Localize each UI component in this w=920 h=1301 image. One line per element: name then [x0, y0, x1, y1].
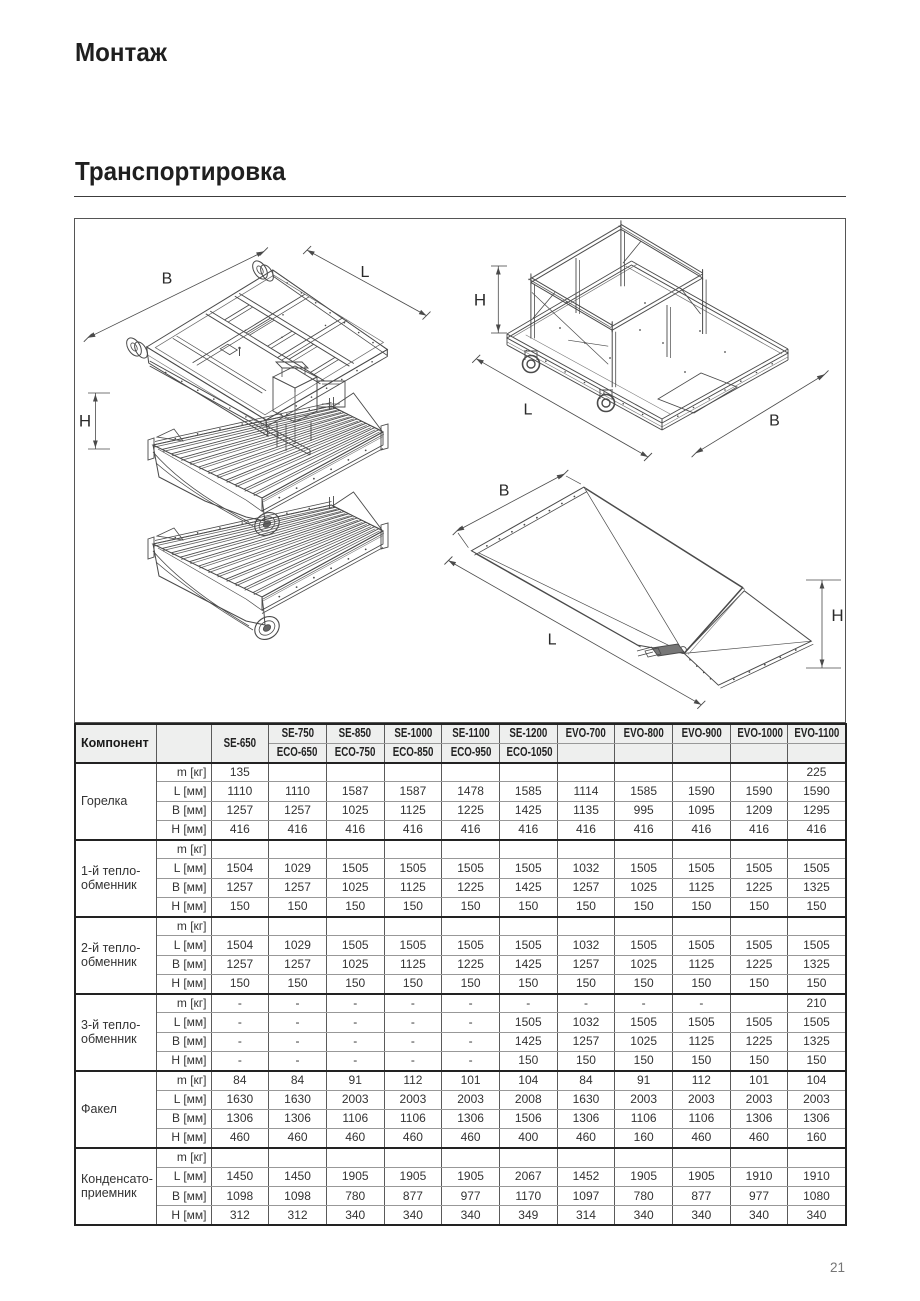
svg-text:L: L — [524, 402, 533, 419]
svg-text:H: H — [79, 412, 91, 431]
svg-text:B: B — [162, 271, 173, 288]
svg-text:B: B — [499, 483, 510, 500]
svg-text:B: B — [769, 413, 780, 430]
svg-text:L: L — [548, 632, 557, 649]
svg-text:L: L — [361, 264, 370, 281]
svg-text:H: H — [831, 606, 843, 625]
svg-text:H: H — [474, 291, 486, 310]
